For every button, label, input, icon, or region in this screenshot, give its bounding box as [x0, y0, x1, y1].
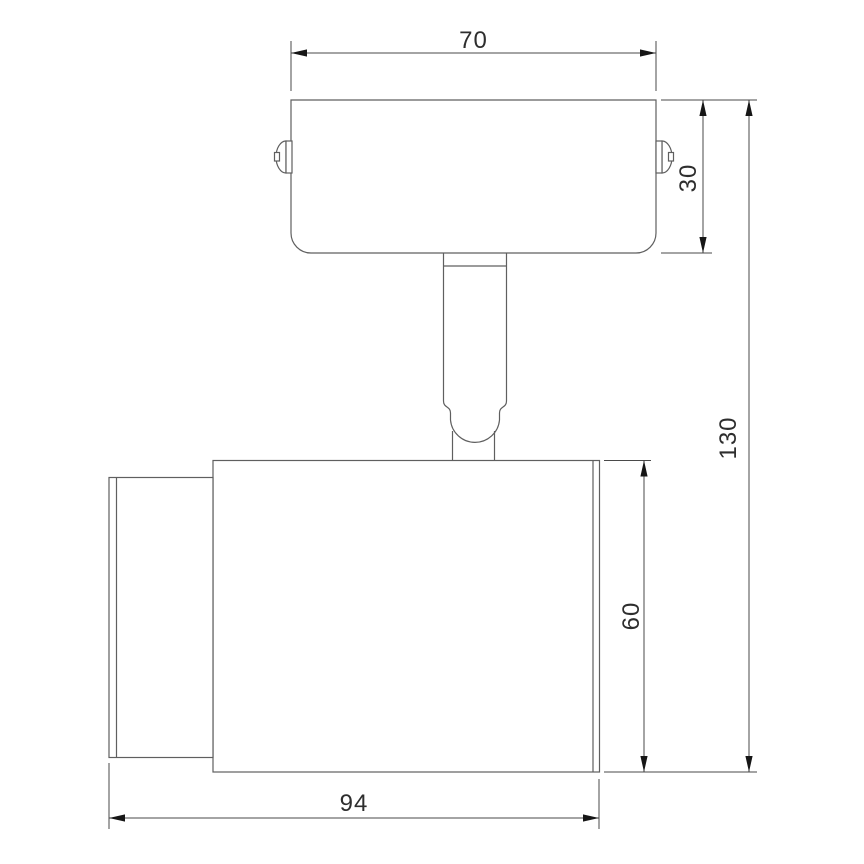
mounting-bracket	[291, 100, 656, 253]
dim-label-94: 94	[340, 790, 369, 817]
screw-left-slot	[275, 153, 280, 162]
screw-left	[275, 141, 293, 173]
dimension-head-length: 94	[109, 763, 599, 829]
arrow-up-icon	[699, 100, 706, 116]
lens-barrel	[109, 478, 213, 758]
screw-right	[656, 141, 674, 173]
lamp-head-body	[213, 461, 600, 773]
dim-label-70: 70	[459, 27, 488, 54]
stem-arm	[444, 253, 507, 442]
drawing-page: 70 30 130 60 94	[0, 0, 864, 864]
dim-label-130: 130	[715, 416, 742, 459]
dimension-head-height: 60	[604, 461, 651, 773]
arrow-up-icon	[745, 100, 752, 116]
screw-left-base	[286, 141, 292, 173]
arrow-down-icon	[640, 756, 647, 772]
dim-label-30: 30	[675, 164, 702, 193]
screw-right-slot	[669, 153, 674, 162]
dimension-bracket-height: 30	[661, 100, 757, 253]
arrow-up-icon	[640, 461, 647, 477]
fixture-outline	[109, 100, 674, 772]
arrow-down-icon	[745, 756, 752, 772]
screw-right-base	[656, 141, 662, 173]
spotlight-dimension-drawing: 70 30 130 60 94	[0, 0, 864, 864]
arrow-right-icon	[640, 49, 656, 56]
dimension-bracket-width: 70	[291, 27, 656, 91]
arrow-left-icon	[109, 814, 125, 821]
dim-label-60: 60	[618, 602, 645, 631]
arrow-down-icon	[699, 237, 706, 253]
arrow-right-icon	[583, 814, 599, 821]
arrow-left-icon	[291, 49, 307, 56]
